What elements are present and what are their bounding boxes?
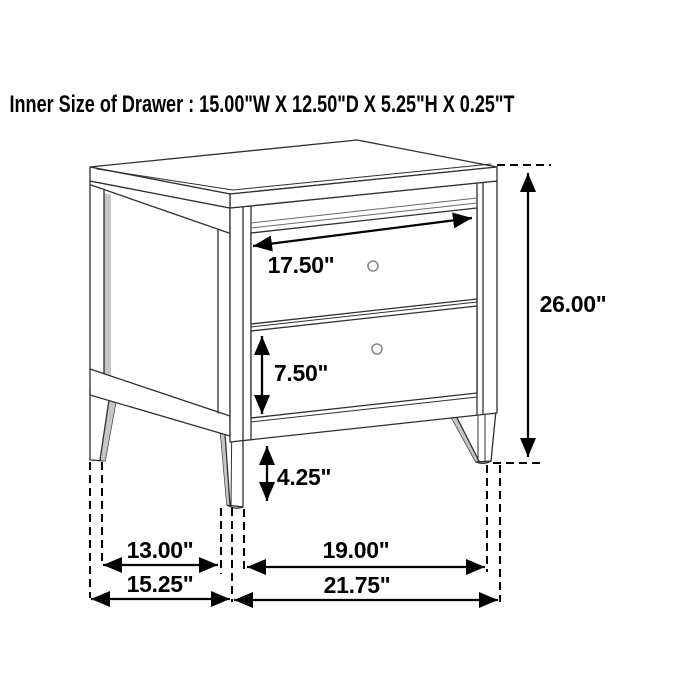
dim-label-base-clearance: 4.25" xyxy=(277,464,331,490)
side-panel xyxy=(90,181,230,436)
dim-label-lower-drawer-height: 7.50" xyxy=(274,360,328,386)
dim-label-front-leg-spacing: 19.00" xyxy=(323,537,390,563)
dim-label-drawer-width: 17.50" xyxy=(268,252,335,278)
nightstand-drawing xyxy=(90,140,497,508)
bottom-drawer-knob xyxy=(372,344,382,354)
page-title: Inner Size of Drawer : 15.00"W X 12.50"D… xyxy=(10,91,515,118)
dim-label-overall-width: 21.75" xyxy=(324,572,391,598)
dimension-diagram-page: 17.50" 26.00" 7.50" 4.25" 13.00" 19.00" … xyxy=(0,0,700,700)
dim-label-overall-height: 26.00" xyxy=(540,291,607,317)
nightstand-dimension-diagram: 17.50" 26.00" 7.50" 4.25" 13.00" 19.00" … xyxy=(0,0,700,700)
top-drawer-knob xyxy=(368,261,378,271)
dim-label-overall-depth: 15.25" xyxy=(127,571,194,597)
dim-label-side-leg-spacing: 13.00" xyxy=(127,537,194,563)
side-panel-recess-shade xyxy=(104,193,111,376)
